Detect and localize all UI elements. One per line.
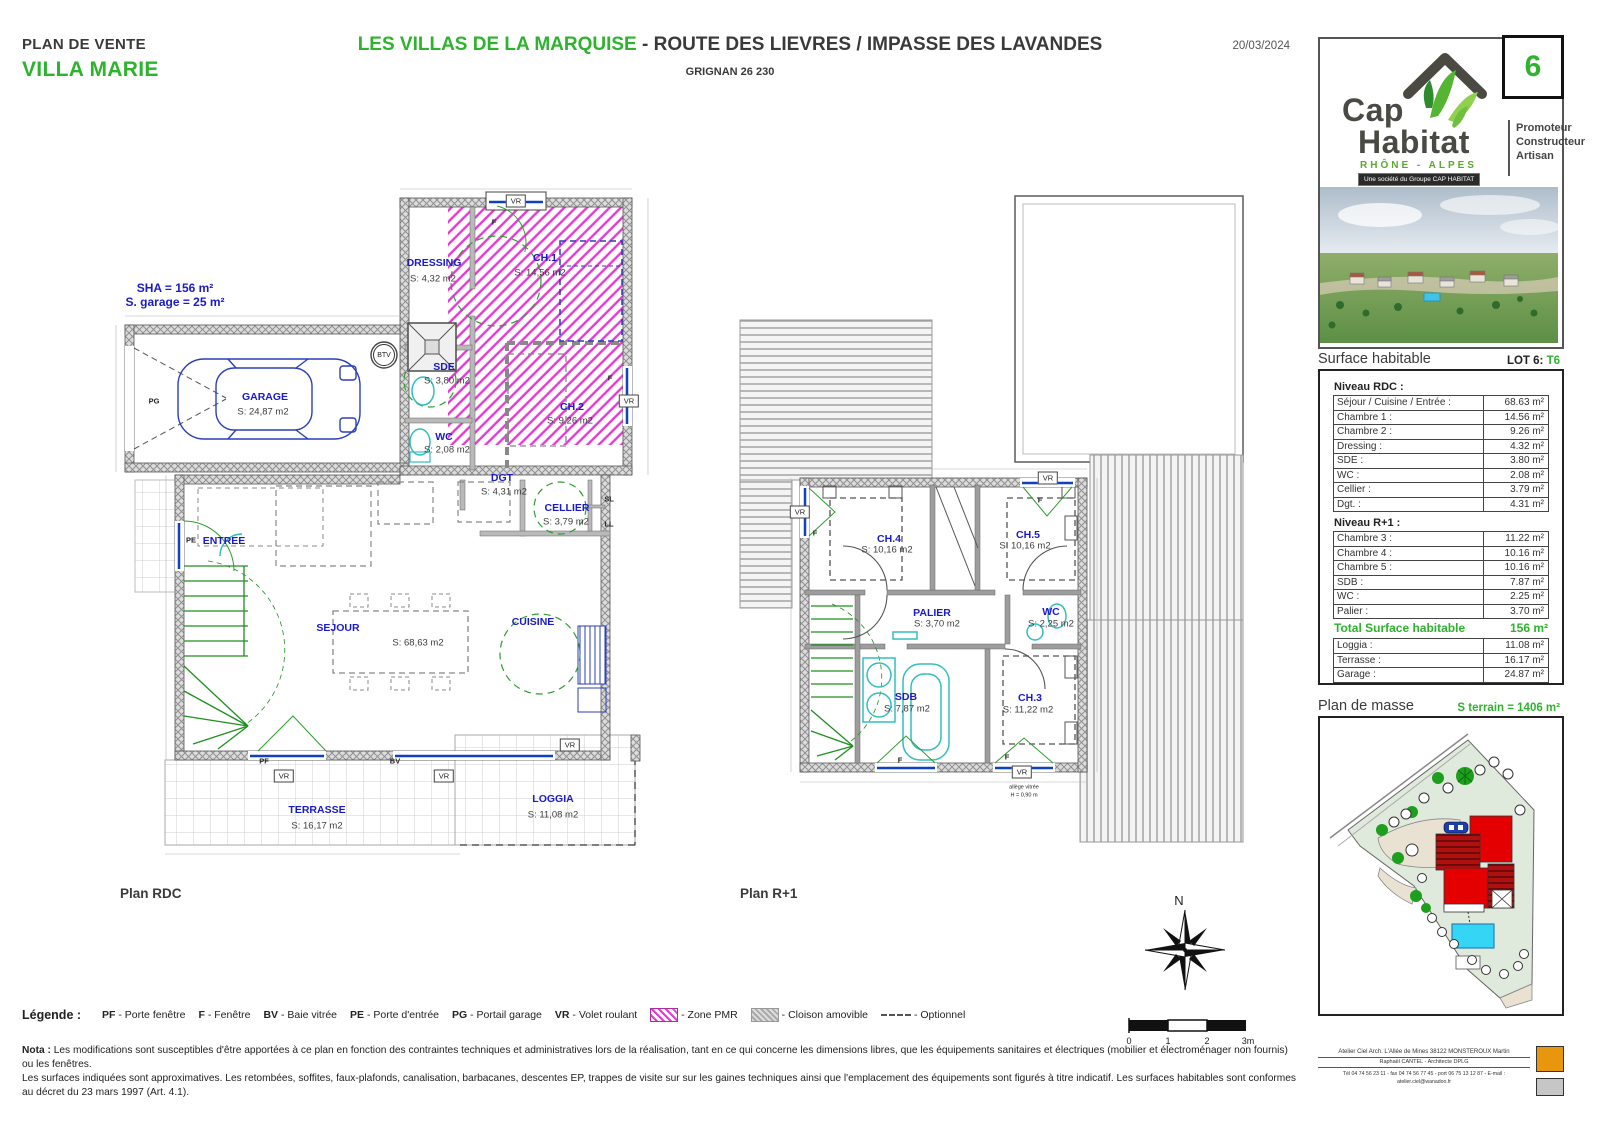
lot-type: T6 — [1547, 355, 1560, 367]
total-line: Total Surface habitable 156 m² — [1334, 621, 1548, 635]
tag-vr-rdc-bv: VR — [434, 770, 454, 783]
tag-pf: PF — [259, 757, 269, 766]
rdc-rows: Séjour / Cuisine / Entrée :68.63 m² Cham… — [1333, 396, 1549, 512]
room-wc-r1: WC — [1042, 606, 1060, 618]
legend-desc: - Cloison amovible — [782, 1009, 868, 1021]
row-label: Loggia : — [1334, 639, 1484, 653]
room-sejour: SEJOUR — [316, 622, 359, 634]
tag-f-rdc-right: F — [608, 374, 613, 383]
row-value: 10.16 m² — [1484, 561, 1548, 575]
lot-label: LOT 6: T6 — [1507, 355, 1560, 367]
tagline-promoteur: Promoteur — [1516, 122, 1572, 134]
room-dgt: DGT — [491, 472, 513, 484]
row-label: Chambre 1 : — [1334, 411, 1484, 425]
tag-f-r1-sdb: F — [898, 756, 903, 765]
tag-vr-r1-left: VR — [790, 506, 810, 519]
plan-rdc-label: Plan RDC — [120, 886, 182, 901]
brand-habitat: Habitat — [1358, 124, 1470, 161]
room-ch5: CH.5 — [1016, 529, 1040, 541]
row-label: SDE : — [1334, 454, 1484, 468]
tag-pe: PE — [186, 536, 196, 545]
architect-line1: Atelier Ciel Arch. L'Allée de Mines 3812… — [1318, 1048, 1530, 1058]
legend-item: PF - Porte fenêtre — [102, 1009, 185, 1021]
legend-bar: Légende : PF - Porte fenêtre F - Fenêtre… — [22, 1008, 1112, 1022]
room-sdb-area: S: 7,87 m2 — [884, 704, 930, 715]
table-row: Terrasse :16.17 m² — [1333, 653, 1549, 669]
optionnel-swatch-icon — [881, 1014, 911, 1016]
row-label: Terrasse : — [1334, 654, 1484, 668]
legend-desc: - Baie vitrée — [281, 1009, 337, 1021]
table-row: Chambre 4 :10.16 m² — [1333, 546, 1549, 562]
table-row: Dressing :4.32 m² — [1333, 439, 1549, 455]
plan-de-vente-page: PLAN DE VENTE VILLA MARIE LES VILLAS DE … — [0, 0, 1600, 1132]
rdc-stairs — [184, 561, 285, 749]
legend-abbr: F — [199, 1009, 205, 1021]
legend-desc: - Volet roulant — [572, 1009, 637, 1021]
room-terrasse-area: S: 16,17 m2 — [291, 821, 342, 832]
room-cellier-area: S: 3,79 m2 — [543, 517, 589, 528]
row-label: Séjour / Cuisine / Entrée : — [1334, 396, 1484, 410]
tag-vr-loggia: VR — [560, 739, 580, 752]
window-note-2: H = 0,90 m — [1010, 793, 1037, 800]
room-entree: ENTREE — [203, 535, 246, 547]
room-ch1: CH.1 — [533, 252, 557, 264]
nota-label: Nota : — [22, 1045, 51, 1056]
room-sde: SDE — [433, 361, 455, 373]
table-row: Dgt. :4.31 m² — [1333, 497, 1549, 513]
room-terrasse: TERRASSE — [288, 804, 345, 816]
stamp-gray — [1536, 1078, 1564, 1096]
row-value: 14.56 m² — [1484, 411, 1548, 425]
room-ch5-area: S: 10,16 m2 — [999, 541, 1050, 552]
tag-ll: LL — [604, 520, 613, 529]
row-value: 11.22 m² — [1484, 532, 1548, 546]
legend-title: Légende : — [22, 1008, 81, 1022]
villa-name: VILLA MARIE — [22, 58, 159, 82]
legend-desc: - Zone PMR — [681, 1009, 738, 1021]
tag-sl: SL — [604, 495, 614, 504]
legend-abbr: PE — [350, 1009, 364, 1021]
legend-item-cloison: - Cloison amovible — [751, 1008, 868, 1022]
row-value: 9.26 m² — [1484, 425, 1548, 439]
legend-desc: - Fenêtre — [208, 1009, 251, 1021]
row-label: Dressing : — [1334, 440, 1484, 454]
row-label: Chambre 2 : — [1334, 425, 1484, 439]
tag-pg: PG — [149, 397, 160, 406]
nota-line1: Les modifications sont susceptibles d'êt… — [22, 1045, 1288, 1070]
room-dressing-area: S: 4,32 m2 — [410, 274, 456, 285]
tagline-artisan: Artisan — [1516, 150, 1554, 162]
surface-title: Surface habitable — [1318, 351, 1431, 367]
row-value: 7.87 m² — [1484, 576, 1548, 590]
row-value: 2.25 m² — [1484, 590, 1548, 604]
pmr-swatch-icon — [650, 1008, 678, 1022]
stamp-orange — [1536, 1046, 1564, 1072]
logo-divider — [1508, 120, 1510, 176]
room-loggia: LOGGIA — [532, 793, 573, 805]
site-plan-map — [1320, 718, 1558, 1010]
legend-abbr: VR — [555, 1009, 570, 1021]
room-wc-rdc-area: S: 2,08 m2 — [424, 445, 470, 456]
row-value: 10.16 m² — [1484, 547, 1548, 561]
site-house — [1436, 816, 1514, 912]
room-garage: GARAGE — [242, 391, 288, 403]
tag-btv: BTV — [373, 344, 395, 366]
room-cuisine: CUISINE — [512, 616, 555, 628]
terrain-area: S terrain = 1406 m² — [1457, 702, 1560, 714]
plan-masse-title: Plan de masse — [1318, 698, 1414, 714]
tagline-constructeur: Constructeur — [1516, 136, 1585, 148]
row-value: 4.32 m² — [1484, 440, 1548, 454]
tag-f-r1-ch3: F — [1005, 753, 1010, 762]
architect-block: Atelier Ciel Arch. L'Allée de Mines 3812… — [1318, 1048, 1530, 1086]
room-palier-area: S: 3,70 m2 — [914, 619, 960, 630]
scale-bar — [1128, 1018, 1254, 1034]
project-city: GRIGNAN 26 230 — [300, 66, 1160, 78]
window-note-1: allège vitrée — [1009, 785, 1039, 792]
cloison-swatch-icon — [751, 1008, 779, 1022]
legend-item: PG - Portail garage — [452, 1009, 542, 1021]
row-value: 4.31 m² — [1484, 498, 1548, 512]
row-value: 3.70 m² — [1484, 605, 1548, 619]
table-row: Chambre 1 :14.56 m² — [1333, 410, 1549, 426]
plan-masse-heading: Plan de masse S terrain = 1406 m² — [1318, 698, 1560, 717]
doc-type: PLAN DE VENTE — [22, 36, 146, 53]
table-row: Garage :24.87 m² — [1333, 667, 1549, 683]
row-value: 16.17 m² — [1484, 654, 1548, 668]
legend-abbr: PF — [102, 1009, 115, 1021]
r1-rows: Chambre 3 :11.22 m² Chambre 4 :10.16 m² … — [1333, 532, 1549, 619]
room-wc-r1-area: S: 2,25 m2 — [1028, 619, 1074, 630]
legend-item: F - Fenêtre — [199, 1009, 251, 1021]
legend-item: PE - Porte d'entrée — [350, 1009, 439, 1021]
room-ch4-area: S: 10,16 m2 — [861, 545, 912, 556]
row-value: 11.08 m² — [1484, 639, 1548, 653]
r1-door-arcs — [843, 546, 1067, 689]
row-label: Chambre 3 : — [1334, 532, 1484, 546]
architect-line3: Tél 04 74 56 23 11 - fax 04 74 56 77 45 … — [1318, 1068, 1530, 1086]
room-dressing: DRESSING — [407, 257, 462, 269]
room-ch4: CH.4 — [877, 533, 901, 545]
tag-vr-rdc-top: VR — [506, 195, 526, 208]
sha-note-2: S. garage = 25 m² — [125, 295, 224, 309]
legend-desc: - Portail garage — [470, 1009, 542, 1021]
table-row: SDE :3.80 m² — [1333, 453, 1549, 469]
niveau-rdc-header: Niveau RDC : — [1334, 381, 1404, 393]
surface-heading: Surface habitable LOT 6: T6 — [1318, 351, 1560, 370]
row-label: Chambre 4 : — [1334, 547, 1484, 561]
row-label: WC : — [1334, 469, 1484, 483]
tag-bv: BV — [390, 757, 400, 766]
brand-region: RHÔNE - ALPES — [1360, 160, 1477, 171]
table-row: Chambre 3 :11.22 m² — [1333, 531, 1549, 547]
tag-f-rdc-top: F — [492, 218, 497, 227]
legend-item-pmr: - Zone PMR — [650, 1008, 738, 1022]
r1-stairs — [811, 604, 882, 760]
row-label: Garage : — [1334, 668, 1484, 682]
table-row: Chambre 2 :9.26 m² — [1333, 424, 1549, 440]
project-title-green: LES VILLAS DE LA MARQUISE — [358, 34, 637, 55]
cap-habitat-logo-icon — [1390, 48, 1500, 128]
row-label: Chambre 5 : — [1334, 561, 1484, 575]
table-row: Palier :3.70 m² — [1333, 604, 1549, 620]
row-label: Palier : — [1334, 605, 1484, 619]
table-row: SDB :7.87 m² — [1333, 575, 1549, 591]
room-sdb: SDB — [895, 691, 917, 703]
room-ch2-area: S: 9,26 m2 — [547, 416, 593, 427]
row-value: 68.63 m² — [1484, 396, 1548, 410]
row-label: WC : — [1334, 590, 1484, 604]
plan-r1-label: Plan R+1 — [740, 886, 797, 901]
tag-vr-r1-top: VR — [1038, 472, 1058, 485]
row-value: 3.79 m² — [1484, 483, 1548, 497]
tag-vr-rdc-pf: VR — [274, 770, 294, 783]
legend-desc: - Optionnel — [914, 1009, 965, 1021]
room-garage-area: S: 24,87 m2 — [237, 407, 288, 418]
lot-number-box: 6 — [1502, 35, 1564, 99]
project-title-street: - ROUTE DES LIEVRES / IMPASSE DES LAVAND… — [637, 34, 1103, 55]
row-label: SDB : — [1334, 576, 1484, 590]
niveau-r1-header: Niveau R+1 : — [1334, 517, 1400, 529]
legend-abbr: PG — [452, 1009, 467, 1021]
legend-desc: - Porte fenêtre — [118, 1009, 185, 1021]
table-row: Cellier :3.79 m² — [1333, 482, 1549, 498]
sha-note-1: SHA = 156 m² — [137, 281, 214, 295]
table-row: Loggia :11.08 m² — [1333, 638, 1549, 654]
legend-item: VR - Volet roulant — [555, 1009, 637, 1021]
room-dgt-area: S: 4,31 m2 — [481, 487, 527, 498]
aerial-photo — [1320, 187, 1558, 343]
room-ch3-area: S: 11,22 m2 — [1003, 705, 1054, 716]
nota-text: Nota : Les modifications sont susceptibl… — [22, 1044, 1302, 1100]
room-sejour-area: S: 68,63 m2 — [392, 638, 443, 649]
annex-rows: Loggia :11.08 m² Terrasse :16.17 m² Gara… — [1333, 639, 1549, 683]
tag-f-r1-top: F — [1038, 496, 1043, 505]
table-row: WC :2.25 m² — [1333, 589, 1549, 605]
surface-table-box: Niveau RDC : Séjour / Cuisine / Entrée :… — [1318, 369, 1564, 685]
project-title: LES VILLAS DE LA MARQUISE - ROUTE DES LI… — [300, 34, 1160, 56]
architect-line2: Raphaël CANTEL - Architecte DPLG — [1318, 1058, 1530, 1068]
lot-label-black: LOT 6: — [1507, 355, 1543, 367]
room-sde-area: S: 3,80 m2 — [424, 376, 470, 387]
room-cellier: CELLIER — [545, 502, 590, 514]
legend-desc: - Porte d'entrée — [367, 1009, 439, 1021]
legend-item-optionnel: - Optionnel — [881, 1009, 965, 1021]
total-value: 156 m² — [1510, 621, 1548, 635]
row-label: Dgt. : — [1334, 498, 1484, 512]
row-value: 24.87 m² — [1484, 668, 1548, 682]
table-row: Chambre 5 :10.16 m² — [1333, 560, 1549, 576]
compass-rose-icon — [1145, 905, 1225, 995]
tag-f-r1-left: F — [813, 529, 818, 538]
tag-vr-rdc-right: VR — [619, 395, 639, 408]
total-label: Total Surface habitable — [1334, 621, 1465, 635]
room-wc-rdc: WC — [435, 431, 453, 443]
nota-line2: Les surfaces indiquées sont approximativ… — [22, 1072, 1302, 1100]
brand-group-banner: Une société du Groupe CAP HABITAT — [1358, 173, 1480, 186]
room-loggia-area: S: 11,08 m2 — [528, 810, 579, 821]
row-label: Cellier : — [1334, 483, 1484, 497]
tag-vr-r1-ch3: VR — [1012, 766, 1032, 779]
room-ch3: CH.3 — [1018, 692, 1042, 704]
legend-abbr: BV — [263, 1009, 278, 1021]
plan-date: 20/03/2024 — [1180, 40, 1290, 52]
table-row: Séjour / Cuisine / Entrée :68.63 m² — [1333, 395, 1549, 411]
legend-item: BV - Baie vitrée — [263, 1009, 337, 1021]
table-row: WC :2.08 m² — [1333, 468, 1549, 484]
row-value: 2.08 m² — [1484, 469, 1548, 483]
room-ch1-area: S: 14,56 m2 — [514, 268, 565, 279]
row-value: 3.80 m² — [1484, 454, 1548, 468]
room-palier: PALIER — [913, 607, 951, 619]
room-ch2: CH.2 — [560, 401, 584, 413]
